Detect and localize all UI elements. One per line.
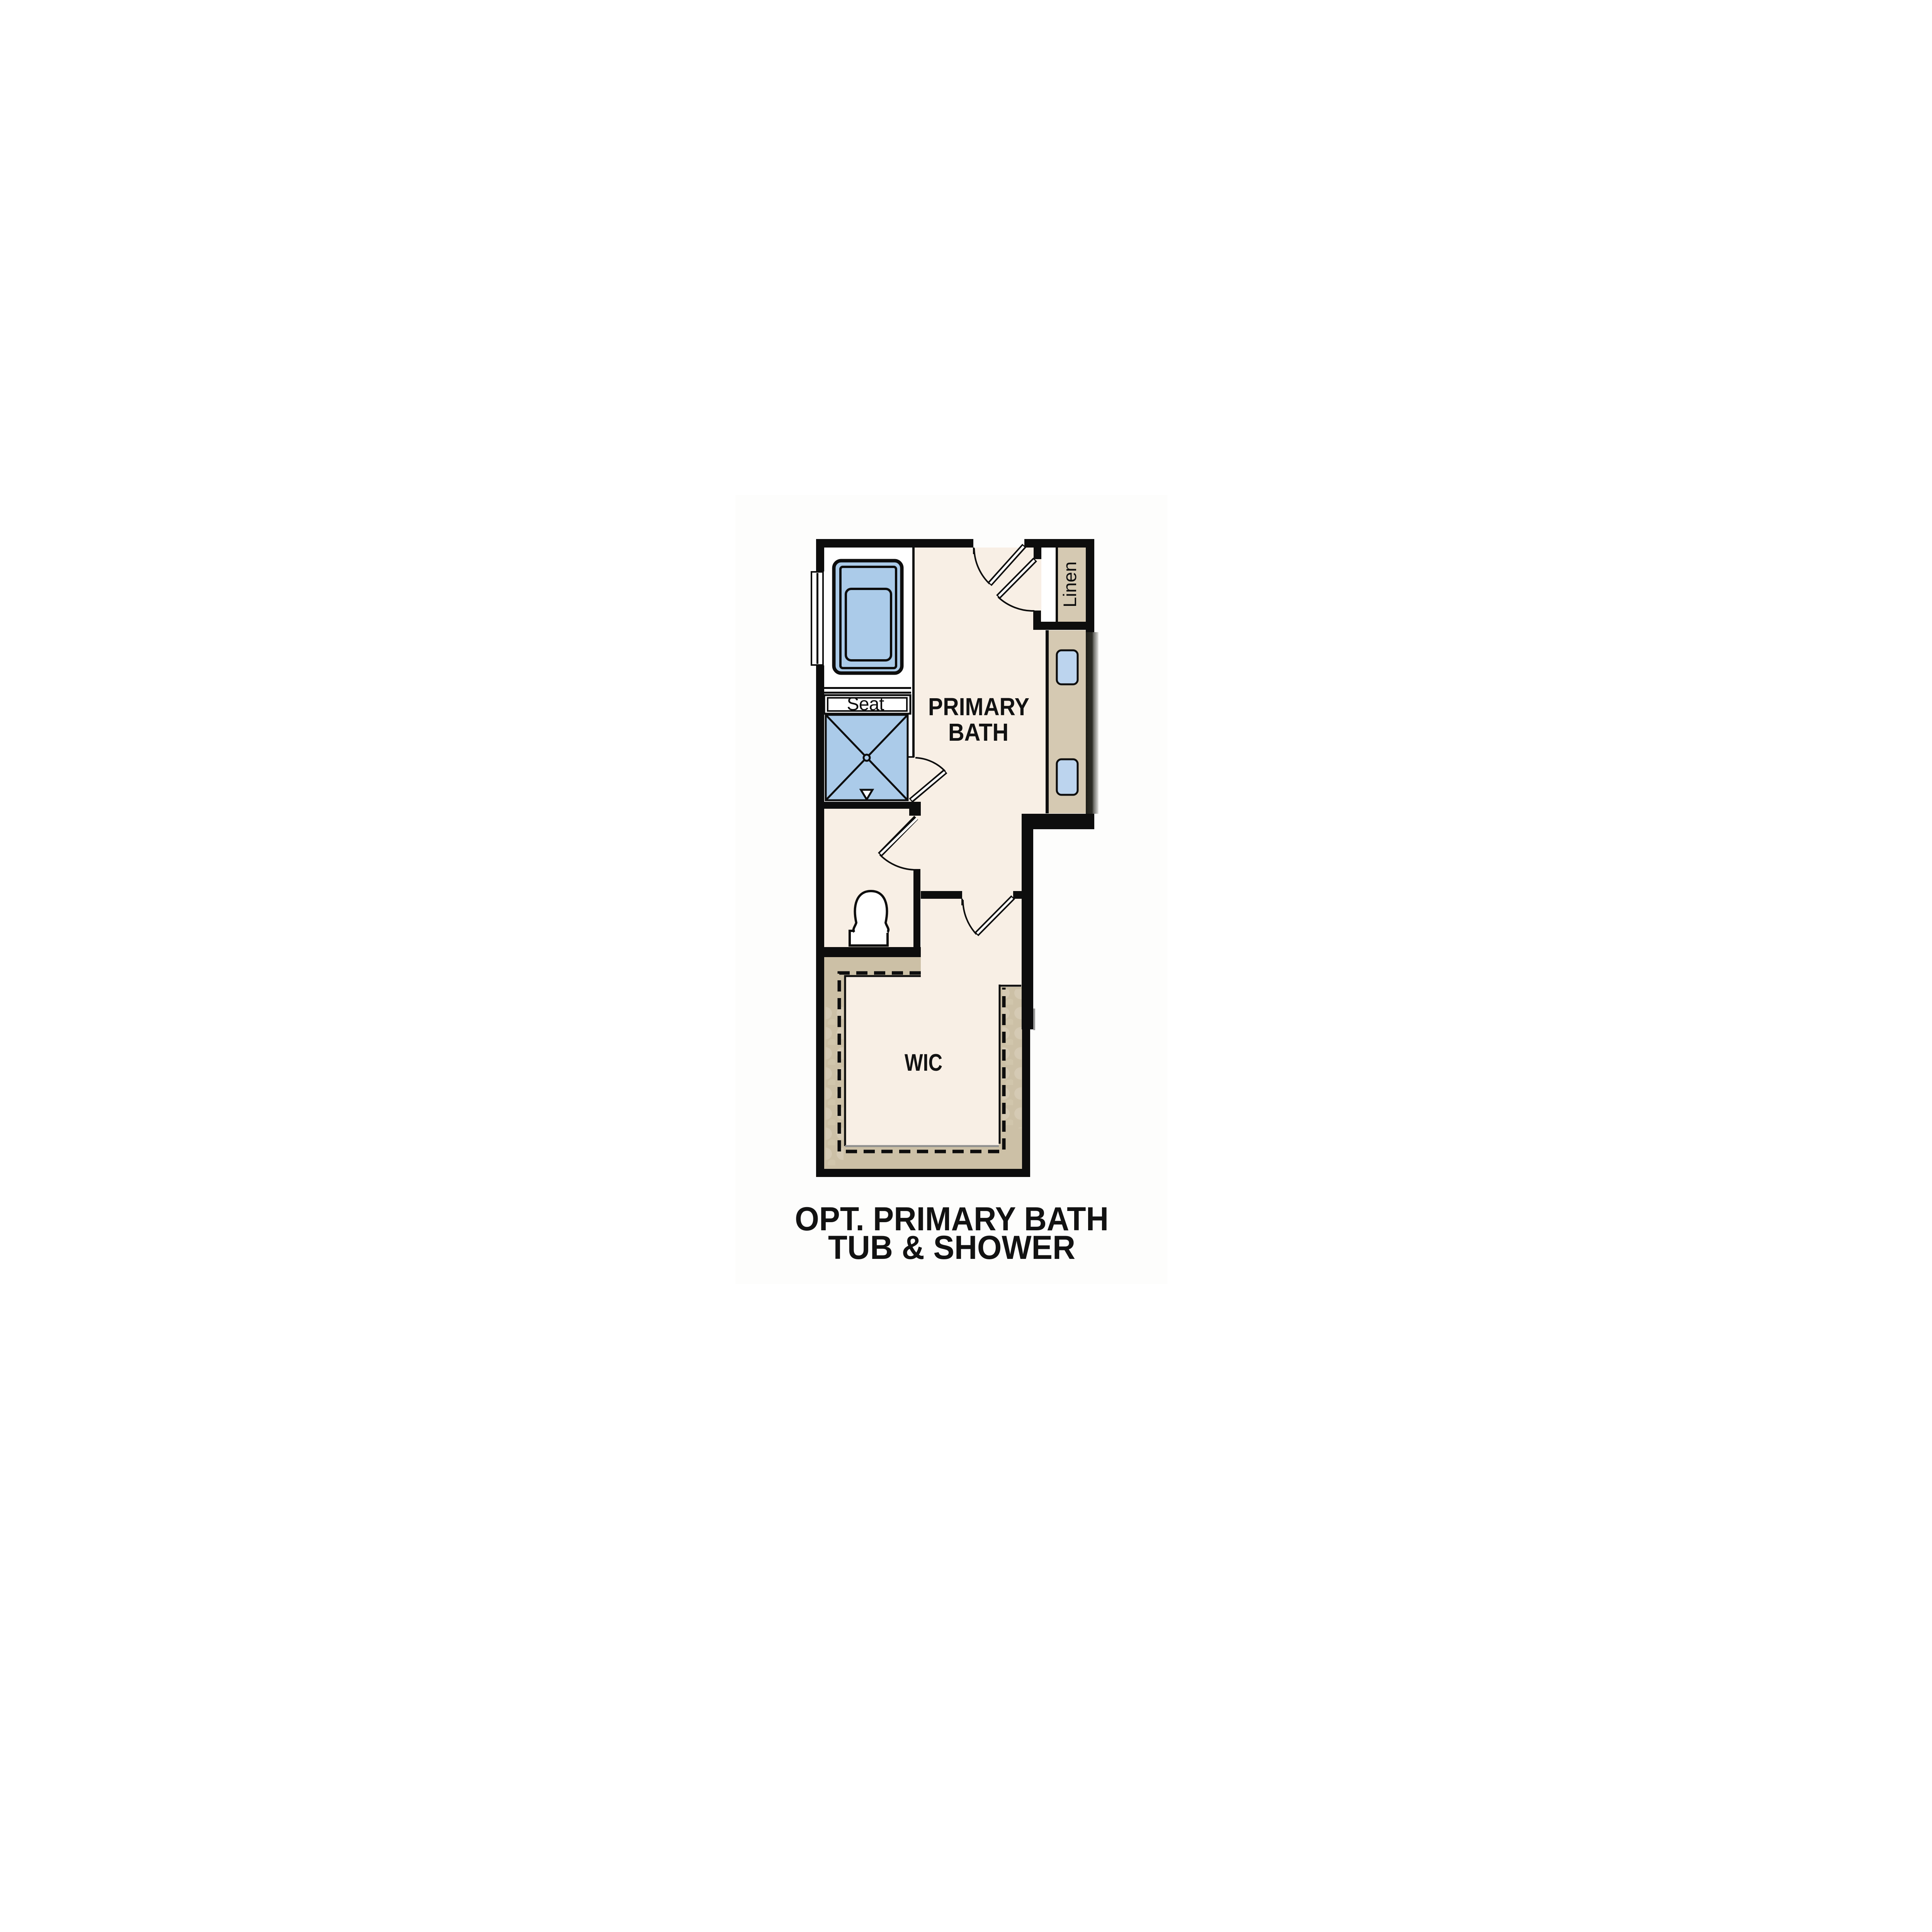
svg-text:BATH: BATH — [948, 718, 1009, 746]
svg-text:Linen: Linen — [1060, 561, 1080, 607]
svg-text:TUB & SHOWER: TUB & SHOWER — [828, 1229, 1075, 1266]
svg-text:PRIMARY: PRIMARY — [928, 693, 1029, 721]
svg-text:Seat: Seat — [847, 694, 884, 714]
svg-text:WIC: WIC — [905, 1049, 942, 1076]
